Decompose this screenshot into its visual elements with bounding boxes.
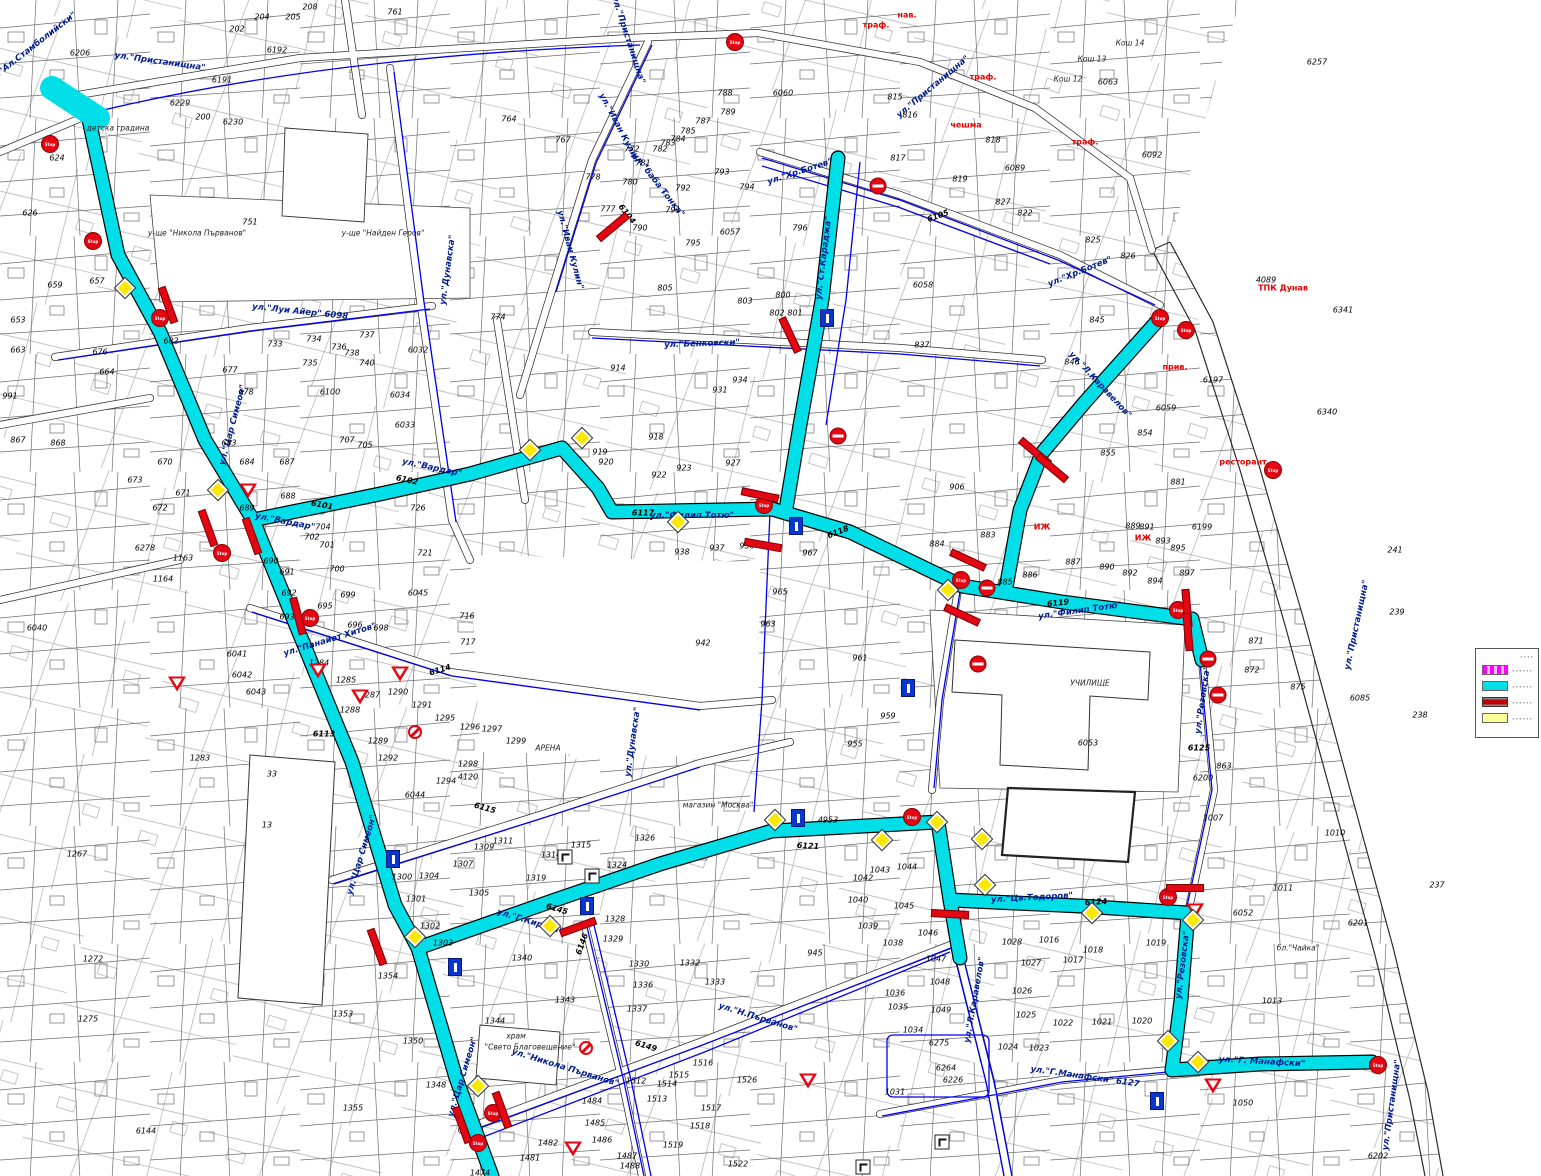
street-code-label: 6124 <box>1085 897 1108 907</box>
parcel-number-label: 704 <box>315 523 330 532</box>
street-code-label: 6125 <box>1188 744 1210 753</box>
parcel-number-label: 1039 <box>858 922 878 931</box>
parcel-number-label: 816 <box>902 111 917 120</box>
parcel-number-label: 1275 <box>78 1015 98 1024</box>
bar-sign-icon <box>949 548 987 571</box>
parcel-number-label: 796 <box>792 224 807 233</box>
parcel-number-label: 1326 <box>635 834 655 843</box>
parcel-number-label: 884 <box>929 540 944 549</box>
parcel-number-label: 761 <box>387 8 402 17</box>
parcel-number-label: 700 <box>329 565 344 574</box>
parcel-number-label: 6059 <box>1156 404 1176 413</box>
parcel-number-label: 889 <box>1125 522 1140 531</box>
parcel-number-label: 1288 <box>340 706 360 715</box>
parcel-number-label: 1289 <box>368 737 388 746</box>
stop-sign-icon: Stop <box>1159 888 1177 906</box>
parcel-number-label: 1340 <box>512 954 532 963</box>
parcel-number-label: 825 <box>1085 236 1100 245</box>
legend-swatch-icon <box>1482 665 1508 675</box>
parcel-number-label: 1291 <box>412 701 432 710</box>
stop-sign-icon: Stop <box>41 135 59 153</box>
parcel-number-label: 1019 <box>1146 939 1166 948</box>
parcel-number-label: 1344 <box>485 1017 505 1026</box>
parcel-number-label: 875 <box>1290 683 1305 692</box>
parcel-number-label: 1290 <box>388 688 408 697</box>
parcel-number-label: 735 <box>302 359 317 368</box>
parcel-number-label: 920 <box>598 458 613 467</box>
parcel-number-label: 1285 <box>336 676 356 685</box>
parcel-number-label: 4953 <box>818 816 838 825</box>
diamond-sign-icon <box>1158 1031 1178 1051</box>
parcel-number-label: 702 <box>304 533 319 542</box>
street-code-label: 6115 <box>473 801 497 816</box>
diamond-sign-icon <box>668 512 688 532</box>
bar-sign-icon <box>1182 613 1193 652</box>
street-code-label: 6113 <box>313 730 335 739</box>
parcel-number-label: 817 <box>890 154 905 163</box>
street-name-label: ул."Л.Каравелов" <box>1067 350 1134 421</box>
parcel-number-label: 1011 <box>1273 884 1293 893</box>
parcel-number-label: 1046 <box>918 929 938 938</box>
street-code-label: 6146 <box>574 932 590 956</box>
parcel-number-label: 942 <box>695 639 710 648</box>
parcel-number-label: 1516 <box>693 1059 713 1068</box>
parcel-number-label: 927 <box>725 459 740 468</box>
parcel-number-label: 822 <box>1017 209 1032 218</box>
yield-sign-icon <box>239 484 257 499</box>
parcel-number-label: 1022 <box>1053 1019 1073 1028</box>
parcel-number-label: 6033 <box>395 421 415 430</box>
parcel-number-label: 6045 <box>408 589 428 598</box>
diamond-sign-icon <box>115 278 135 298</box>
bar-sign-icon <box>1181 589 1192 628</box>
bar-sign-icon <box>367 928 388 966</box>
yield-sign-icon <box>564 1142 582 1157</box>
parcel-number-label: 1485 <box>585 1119 605 1128</box>
stop-sign-icon: Stop <box>1177 321 1195 339</box>
parcel-number-label: 693 <box>279 613 294 622</box>
parcel-number-label: 6229 <box>170 99 190 108</box>
legend-item: ∙∙∙∙∙∙∙∙ <box>1482 713 1534 723</box>
diamond-sign-icon <box>972 829 992 849</box>
parcel-number-label: 6042 <box>232 671 252 680</box>
poi-label: Кош 12 <box>1054 75 1083 84</box>
parcel-number-label: 781 <box>635 159 650 168</box>
legend-title: ∙∙∙∙ <box>1482 654 1534 659</box>
parcel-number-label: 826 <box>1120 252 1135 261</box>
parcel-number-label: 692 <box>281 589 296 598</box>
parcel-number-label: 1036 <box>885 989 905 998</box>
parcel-number-label: 237 <box>1429 881 1444 890</box>
parcel-number-label: 918 <box>648 433 663 442</box>
parcel-number-label: 653 <box>10 316 25 325</box>
parcel-number-label: 6058 <box>913 281 933 290</box>
street-name-label: ул."Г. Манафски" <box>1219 1055 1306 1070</box>
wsign-sign-icon <box>935 1135 950 1150</box>
parcel-number-label: 945 <box>807 949 822 958</box>
parcel-number-label: 963 <box>760 620 775 629</box>
parcel-number-label: 33 <box>267 770 277 779</box>
parcel-number-label: 1350 <box>403 1037 423 1046</box>
parcel-number-label: 991 <box>2 392 17 401</box>
street-name-label: ул."Л.Каравелов" <box>963 956 988 1044</box>
parcel-number-label: 1311 <box>493 837 513 846</box>
bar-sign-icon <box>242 517 263 555</box>
stop-sign-icon: Stop <box>213 544 231 562</box>
red-annotation-label: ТПК Дунав <box>1258 284 1308 293</box>
bar-sign-icon <box>741 487 780 503</box>
parcel-number-label: 683 <box>221 439 236 448</box>
parcel-number-label: 1023 <box>1029 1044 1049 1053</box>
diamond-sign-icon <box>1183 910 1203 930</box>
poi-label: магазин "Москва" <box>683 801 754 810</box>
bar-sign-icon <box>559 917 597 938</box>
parcel-number-label: 657 <box>89 277 104 286</box>
diamond-sign-icon <box>938 580 958 600</box>
bar-sign-icon <box>1018 437 1052 468</box>
noentry-sign-icon <box>1200 651 1217 668</box>
parcel-number-label: 959 <box>880 712 895 721</box>
street-name-label: ул."Ал.Стамболийски" <box>0 10 79 86</box>
parcel-number-label: 922 <box>651 471 666 480</box>
parcel-number-label: 934 <box>732 376 747 385</box>
parcel-number-label: 1010 <box>1325 829 1345 838</box>
stop-sign-icon: Stop <box>1369 1056 1387 1074</box>
parcel-number-label: 6341 <box>1333 306 1353 315</box>
parcel-number-label: 4120 <box>458 773 478 782</box>
parcel-number-label: 815 <box>887 93 902 102</box>
parcel-number-label: 1007 <box>1203 814 1223 823</box>
parcel-number-label: 1307 <box>453 860 473 869</box>
info-sign-icon <box>1150 1092 1164 1110</box>
street-name-label: ул."баба Тонка" <box>630 151 687 220</box>
poi-label: Кош 13 <box>1078 55 1107 64</box>
parcel-number-label: 1343 <box>555 996 575 1005</box>
bar-sign-icon <box>943 603 981 626</box>
parcel-number-label: 6340 <box>1317 408 1337 417</box>
parcel-number-label: 6060 <box>773 89 793 98</box>
parcel-number-label: 678 <box>238 388 253 397</box>
parcel-number-label: 1283 <box>190 754 210 763</box>
parcel-number-label: 965 <box>772 588 787 597</box>
parcel-number-label: 6040 <box>27 624 47 633</box>
parcel-number-label: 687 <box>279 458 294 467</box>
bar-sign-icon <box>596 212 630 243</box>
parcel-number-label: 6089 <box>1005 164 1025 173</box>
parcel-number-label: 202 <box>229 25 244 34</box>
red-annotation-label: траф. <box>1072 138 1099 147</box>
parcel-number-label: 914 <box>610 364 625 373</box>
parcel-number-label: 6057 <box>720 228 740 237</box>
parcel-number-label: 1302 <box>420 922 440 931</box>
wsign-sign-icon <box>856 1160 871 1175</box>
parcel-number-label: 863 <box>1216 762 1231 771</box>
diamond-sign-icon <box>1082 903 1102 923</box>
parcel-number-label: 1020 <box>1132 1017 1152 1026</box>
parcel-number-label: 684 <box>239 458 254 467</box>
parcel-number-label: 1295 <box>435 714 455 723</box>
street-code-label: 6145 <box>545 901 569 916</box>
legend-swatch-icon <box>1482 713 1508 723</box>
parcel-number-label: 1301 <box>406 895 426 904</box>
street-code-label: 6118 <box>826 524 850 541</box>
bar-sign-icon <box>931 909 969 919</box>
stop-sign-icon: Stop <box>755 496 773 514</box>
parcel-number-label: 1024 <box>998 1043 1018 1052</box>
street-code-label: 6121 <box>797 841 820 851</box>
parcel-number-label: 772 <box>624 145 639 154</box>
parcel-number-label: 6197 <box>1203 376 1223 385</box>
parcel-number-label: 6257 <box>1307 58 1327 67</box>
poi-label: детска градина <box>87 124 150 133</box>
info-sign-icon <box>901 679 915 697</box>
parcel-number-label: 6053 <box>1078 739 1098 748</box>
parcel-number-label: 837 <box>914 341 929 350</box>
parcel-number-label: 1319 <box>526 874 546 883</box>
parcel-number-label: 659 <box>47 281 62 290</box>
red-annotation-label: прив. <box>1163 363 1188 372</box>
parcel-number-label: 800 <box>775 291 790 300</box>
parcel-number-label: 677 <box>222 366 237 375</box>
noentry-sign-icon <box>870 178 887 195</box>
parcel-number-label: 1330 <box>629 960 649 969</box>
parcel-number-label: 893 <box>1155 537 1170 546</box>
parcel-number-label: 1474 <box>470 1169 490 1176</box>
parcel-number-label: 737 <box>359 331 374 340</box>
parcel-number-label: 1484 <box>582 1097 602 1106</box>
yield-sign-icon <box>1186 904 1204 919</box>
parcel-number-label: 699 <box>340 591 355 600</box>
red-annotation-label: траф. <box>970 73 997 82</box>
parcel-number-label: 1027 <box>1021 959 1041 968</box>
parcel-number-label: 961 <box>852 654 867 663</box>
map-canvas[interactable]: ул."Цар Симеон"ул."Цар Симеон"ул."Цар Си… <box>0 0 1541 1176</box>
parcel-number-label: 1305 <box>469 889 489 898</box>
street-code-label: 6105 <box>926 208 950 224</box>
parcel-number-label: 777 <box>600 205 615 214</box>
parcel-number-label: 937 <box>709 544 724 553</box>
street-name-label: ул."Пристанищна" <box>609 0 647 85</box>
diamond-sign-icon <box>405 927 425 947</box>
parcel-number-label: 751 <box>242 218 257 227</box>
parcel-number-label: 906 <box>949 483 964 492</box>
parcel-number-label: 682 <box>163 337 178 346</box>
info-sign-icon <box>580 897 594 915</box>
parcel-number-label: 1038 <box>883 939 903 948</box>
street-code-label: 6104 <box>617 202 638 225</box>
street-name-label: ул."Пристанищна" <box>1343 579 1372 671</box>
parcel-number-label: 717 <box>460 638 475 647</box>
street-name-label: ул."Вардар" <box>401 457 463 479</box>
diamond-sign-icon <box>540 916 560 936</box>
street-name-label: ул."Бенковски" <box>664 338 740 351</box>
stop-sign-icon: Stop <box>1264 461 1282 479</box>
parcel-number-label: 1329 <box>603 935 623 944</box>
info-sign-icon <box>791 809 805 827</box>
info-sign-icon <box>386 850 400 868</box>
noentry-sign-icon <box>970 656 987 673</box>
poi-label: у-ще "Никола Първанов" <box>148 229 246 238</box>
stop-sign-icon: Stop <box>1169 601 1187 619</box>
parcel-number-label: 764 <box>501 115 516 124</box>
poi-label: АРЕНА <box>535 744 560 753</box>
parcel-number-label: 1298 <box>458 760 478 769</box>
parcel-number-label: 887 <box>1065 558 1080 567</box>
stop-sign-icon: Stop <box>726 33 744 51</box>
parcel-number-label: 1049 <box>931 1006 951 1015</box>
parcel-number-label: 845 <box>1089 316 1104 325</box>
parcel-number-label: 1324 <box>607 861 627 870</box>
parcel-number-label: 1025 <box>1016 1011 1036 1020</box>
map-overlay: ул."Цар Симеон"ул."Цар Симеон"ул."Цар Си… <box>0 0 1541 1176</box>
parcel-number-label: 1513 <box>647 1095 667 1104</box>
parcel-number-label: 1487 <box>617 1152 637 1161</box>
noentry-sign-icon <box>979 580 996 597</box>
parcel-number-label: 740 <box>359 359 374 368</box>
street-code-label: 6119 <box>1046 597 1069 608</box>
street-name-label: ул."Резовска" <box>1174 930 1192 999</box>
parcel-number-label: 6201 <box>1348 919 1368 928</box>
parcel-number-label: 626 <box>22 209 37 218</box>
parcel-number-label: 846 <box>1064 358 1079 367</box>
street-name-label: ул."Пристанищна" <box>1381 1059 1404 1151</box>
parcel-number-label: 696 <box>347 621 362 630</box>
street-name-label: ул."Хр.Ботев" <box>1047 255 1114 290</box>
parcel-number-label: 872 <box>1244 666 1259 675</box>
parcel-number-label: 891 <box>1139 523 1154 532</box>
street-name-label: ул."Н.Първанов" <box>717 1001 798 1035</box>
parcel-number-label: 793 <box>714 168 729 177</box>
parcel-number-label: 819 <box>952 175 967 184</box>
parcel-number-label: 690 <box>263 557 278 566</box>
parcel-number-label: 208 <box>302 3 317 12</box>
legend-label: ∙∙∙∙∙∙∙∙ <box>1512 684 1534 689</box>
parcel-number-label: 1018 <box>1083 946 1103 955</box>
parcel-number-label: 1332 <box>680 959 700 968</box>
parcel-number-label: 1526 <box>737 1076 757 1085</box>
street-name-label: ул."Иван Кулин" <box>555 209 586 290</box>
poi-label: Кош 14 <box>1116 39 1145 48</box>
street-name-label: ул."Филип Тотю" <box>650 511 734 521</box>
legend-swatch-icon <box>1482 681 1508 691</box>
legend-label: ∙∙∙∙∙∙∙∙ <box>1512 700 1534 705</box>
stop-sign-icon: Stop <box>301 609 319 627</box>
parcel-number-label: 238 <box>1412 711 1427 720</box>
parcel-number-label: 701 <box>319 541 334 550</box>
street-name-label: ул."Хр.Ботев" <box>766 157 834 188</box>
parcel-number-label: 6200 <box>1193 774 1213 783</box>
diamond-sign-icon <box>208 480 228 500</box>
diamond-sign-icon <box>572 428 592 448</box>
legend-swatch-icon <box>1482 697 1508 707</box>
parcel-number-label: 6043 <box>246 688 266 697</box>
parcel-number-label: 1294 <box>436 777 456 786</box>
parcel-number-label: 931 <box>712 386 727 395</box>
parcel-number-label: 1028 <box>1002 938 1022 947</box>
parcel-number-label: 6034 <box>390 391 410 400</box>
info-sign-icon <box>789 517 803 535</box>
bar-sign-icon <box>452 1106 473 1144</box>
parcel-number-label: 868 <box>50 439 65 448</box>
parcel-number-label: 919 <box>592 448 607 457</box>
street-name-label: ул."Панайот Хитов" <box>282 621 377 659</box>
parcel-number-label: 827 <box>995 198 1010 207</box>
parcel-number-label: 895 <box>1170 544 1185 553</box>
parcel-number-label: 695 <box>317 602 332 611</box>
parcel-number-label: 1486 <box>592 1136 612 1145</box>
stop-sign-icon: Stop <box>151 309 169 327</box>
parcel-number-label: 780 <box>622 178 637 187</box>
street-name-label: ул."Цар Симеон" <box>446 1036 480 1118</box>
parcel-number-label: 867 <box>10 436 25 445</box>
red-annotation-label: ресторант <box>1219 458 1266 467</box>
parcel-number-label: 1287 <box>360 691 380 700</box>
parcel-number-label: 6092 <box>1142 151 1162 160</box>
legend-item: ∙∙∙∙∙∙∙∙ <box>1482 697 1534 707</box>
legend-item: ∙∙∙∙∙∙∙∙∙ <box>1482 665 1534 675</box>
parcel-number-label: 1026 <box>1012 987 1032 996</box>
parcel-number-label: 936 <box>739 542 754 551</box>
parcel-number-label: 1042 <box>853 874 873 883</box>
parcel-number-label: 698 <box>373 624 388 633</box>
poi-label: "Свето Благовещение" <box>485 1043 576 1052</box>
parcel-number-label: 1512 <box>626 1077 646 1086</box>
bar-sign-icon <box>289 597 307 636</box>
parcel-number-label: 6199 <box>1192 523 1212 532</box>
diamond-sign-icon <box>872 830 892 850</box>
parcel-number-label: 6044 <box>405 791 425 800</box>
parcel-number-label: 200 <box>195 113 210 122</box>
yield-sign-icon <box>309 664 327 679</box>
stop-sign-icon: Stop <box>1151 309 1169 327</box>
legend: ∙∙∙∙ ∙∙∙∙∙∙∙∙∙∙∙∙∙∙∙∙∙∙∙∙∙∙∙∙∙∙∙∙∙∙∙∙∙ <box>1475 648 1539 738</box>
parcel-number-label: 787 <box>695 117 710 126</box>
parcel-number-label: 1517 <box>701 1104 721 1113</box>
red-annotation-label: чешма <box>950 121 981 130</box>
stop-sign-icon: Stop <box>469 1134 487 1152</box>
noentry-sign-icon <box>830 428 847 445</box>
bar-sign-icon <box>778 316 801 354</box>
parcel-number-label: 1481 <box>520 1154 540 1163</box>
parcel-number-label: 4089 <box>1256 276 1276 285</box>
parcel-number-label: 734 <box>306 335 321 344</box>
parcel-number-label: 6206 <box>70 49 90 58</box>
parcel-number-label: 783 <box>660 139 675 148</box>
red-annotation-label: нав. <box>897 11 916 20</box>
parcel-number-label: 1021 <box>1092 1018 1112 1027</box>
diamond-sign-icon <box>975 875 995 895</box>
parcel-number-label: 790 <box>632 224 647 233</box>
parcel-number-label: 705 <box>357 441 372 450</box>
street-code-label: 6114 <box>428 662 452 677</box>
parcel-number-label: 774 <box>490 313 505 322</box>
parcel-number-label: 784 <box>670 135 685 144</box>
parcel-number-label: 923 <box>676 464 691 473</box>
parcel-number-label: 6275 <box>929 1039 949 1048</box>
street-name-label: ул."Резовска" <box>1193 665 1212 734</box>
parcel-number-label: 6063 <box>1098 78 1118 87</box>
parcel-number-label: 6230 <box>223 118 243 127</box>
parcel-number-label: 788 <box>717 89 732 98</box>
diamond-sign-icon <box>468 1076 488 1096</box>
parcel-number-label: 1297 <box>482 725 502 734</box>
parcel-number-label: 818 <box>985 136 1000 145</box>
parcel-number-label: 689 <box>239 504 254 513</box>
street-code-label: 6102 <box>395 473 419 486</box>
info-sign-icon <box>448 958 462 976</box>
poi-label: храм <box>506 1032 525 1041</box>
parcel-number-label: 767 <box>555 136 570 145</box>
